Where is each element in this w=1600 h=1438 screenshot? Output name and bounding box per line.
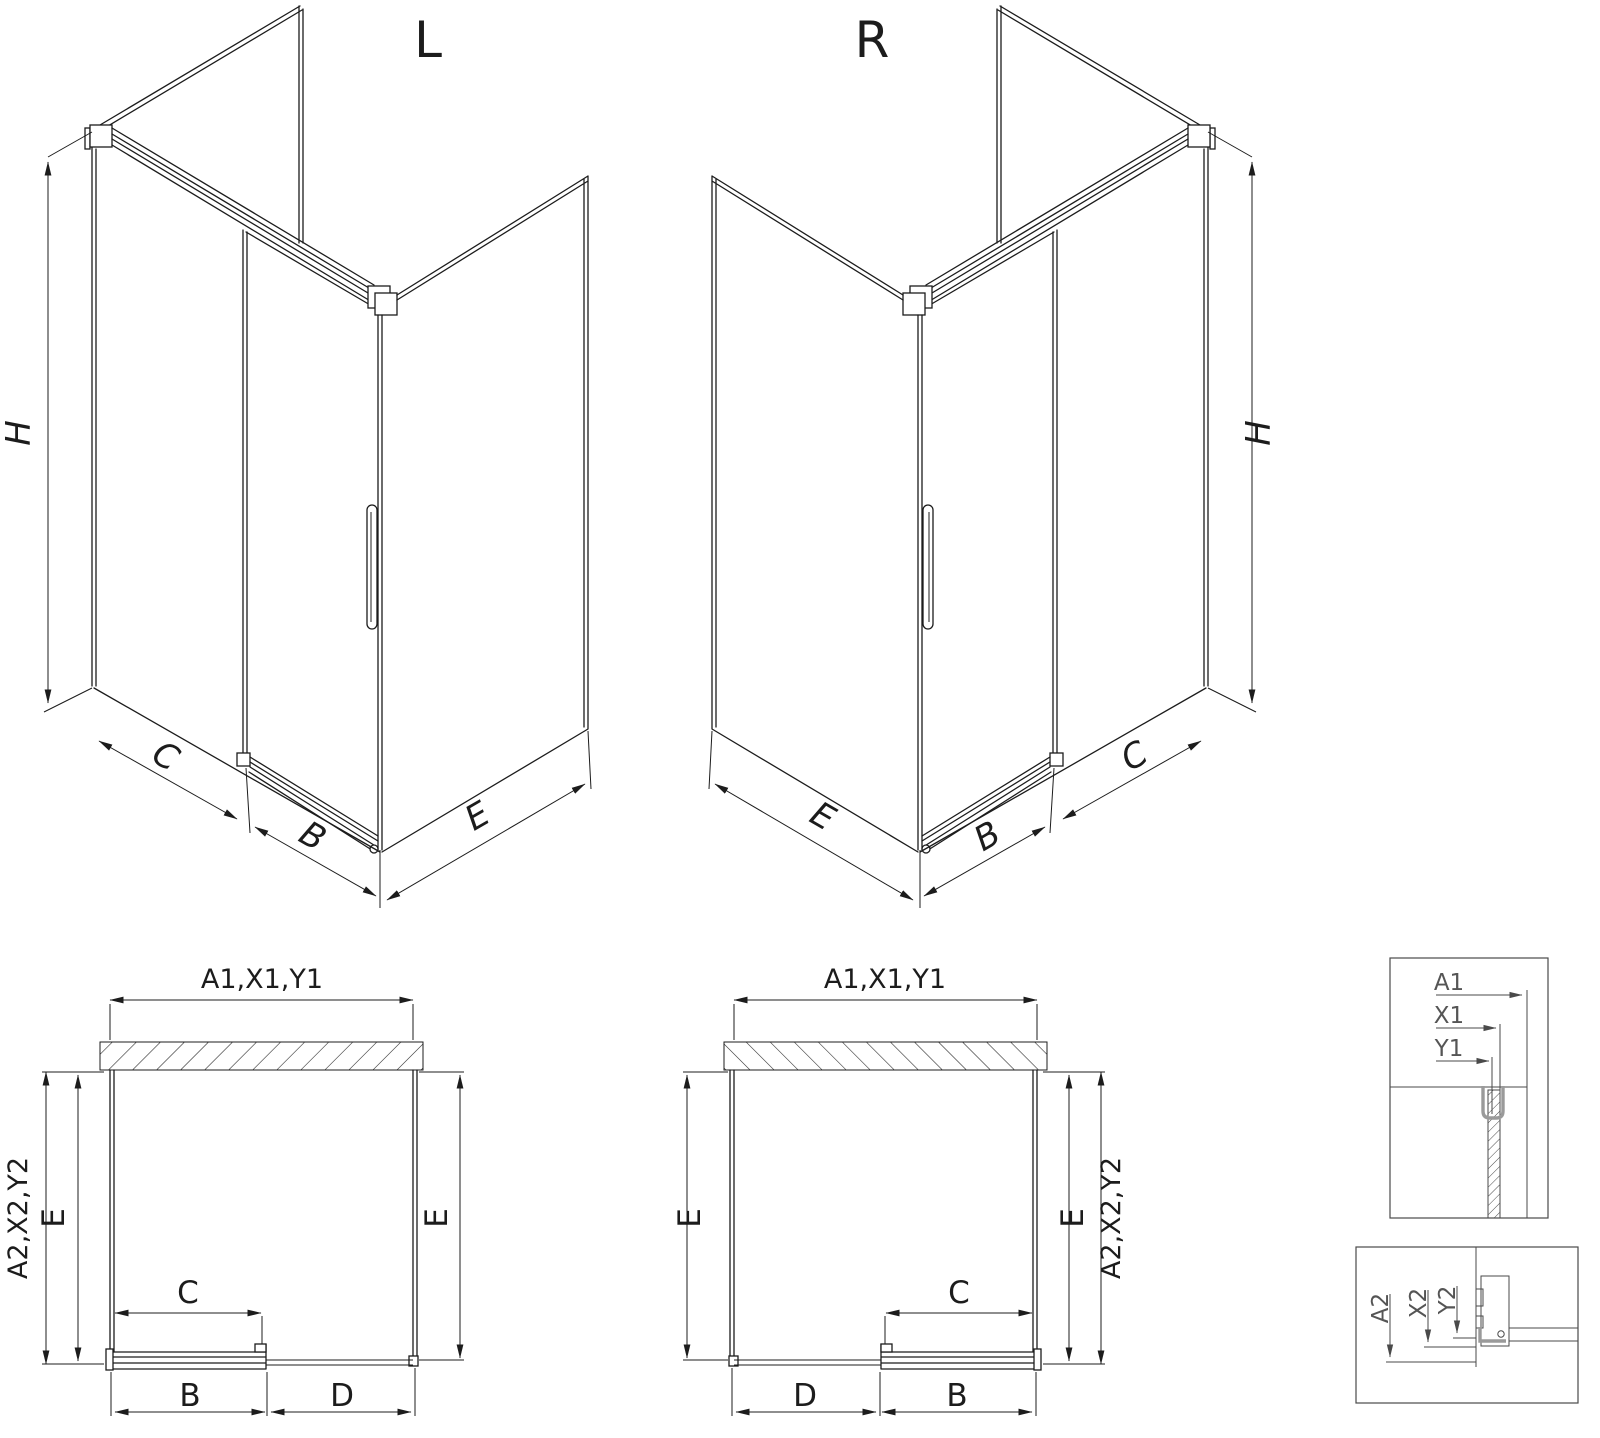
detail-label-x1: X1 <box>1434 1003 1464 1029</box>
iso-view-left: L H C B E <box>0 6 591 908</box>
iso-lineart-left <box>44 6 591 908</box>
view-title-right: R <box>855 11 890 69</box>
dim-label-height: H <box>1239 420 1279 446</box>
dim-label-e-right: E <box>419 1208 455 1228</box>
detail-box-wall: A1 X1 Y1 <box>1390 958 1548 1218</box>
detail-box-floor: A2 X2 Y2 <box>1356 1247 1578 1403</box>
detail-label-a1: A1 <box>1434 970 1464 996</box>
detail-label-y1: Y1 <box>1434 1036 1464 1062</box>
dim-label-c: C <box>177 1275 199 1311</box>
dim-label-e: E <box>458 794 497 840</box>
dim-label-e: E <box>803 794 842 840</box>
dim-label-c: C <box>1114 733 1155 780</box>
glass-section <box>1488 1090 1500 1218</box>
reference-lines <box>1386 1338 1476 1362</box>
dim-label-d: D <box>330 1378 354 1414</box>
dim-label-a2x2y2: A2,X2,Y2 <box>1096 1157 1127 1279</box>
view-title-left: L <box>414 11 442 69</box>
detail-label-y2: Y2 <box>1435 1286 1461 1316</box>
profile-section <box>1476 1276 1578 1346</box>
dim-label-a1x1y1: A1,X1,Y1 <box>201 964 323 995</box>
iso-lineart-right <box>709 6 1256 908</box>
detail-frame <box>1356 1247 1578 1403</box>
dim-label-d: D <box>793 1378 817 1414</box>
detail-label-a2: A2 <box>1368 1293 1394 1323</box>
iso-view-right: R H E B C <box>709 6 1279 908</box>
plan-lineart-left <box>42 1000 464 1416</box>
detail-label-x2: X2 <box>1406 1288 1432 1318</box>
dim-label-c: C <box>948 1275 970 1311</box>
detail-frame <box>1390 958 1548 1218</box>
dim-label-b: B <box>967 813 1007 859</box>
dim-label-e-left: E <box>36 1208 72 1228</box>
dim-label-b: B <box>292 813 332 859</box>
plan-lineart-right <box>683 1000 1105 1416</box>
dim-label-c: C <box>145 733 186 780</box>
dim-label-e-right: E <box>1055 1208 1091 1228</box>
dim-label-height: H <box>0 420 39 446</box>
dim-label-b: B <box>179 1378 200 1414</box>
dim-label-e-left: E <box>672 1208 708 1228</box>
shower-enclosure-technical-drawing: L H C B E R H E B C A1,X1,Y1 A2,X2,Y2 E … <box>0 0 1600 1438</box>
dim-label-a1x1y1: A1,X1,Y1 <box>824 964 946 995</box>
page: L H C B E R H E B C A1,X1,Y1 A2,X2,Y2 E … <box>0 0 1600 1438</box>
plan-view-left: A1,X1,Y1 A2,X2,Y2 E E C B D <box>3 964 464 1416</box>
dim-label-b: B <box>946 1378 967 1414</box>
dim-label-a2x2y2: A2,X2,Y2 <box>3 1157 34 1279</box>
plan-view-right: A1,X1,Y1 A2,X2,Y2 E E C D B <box>672 964 1127 1416</box>
